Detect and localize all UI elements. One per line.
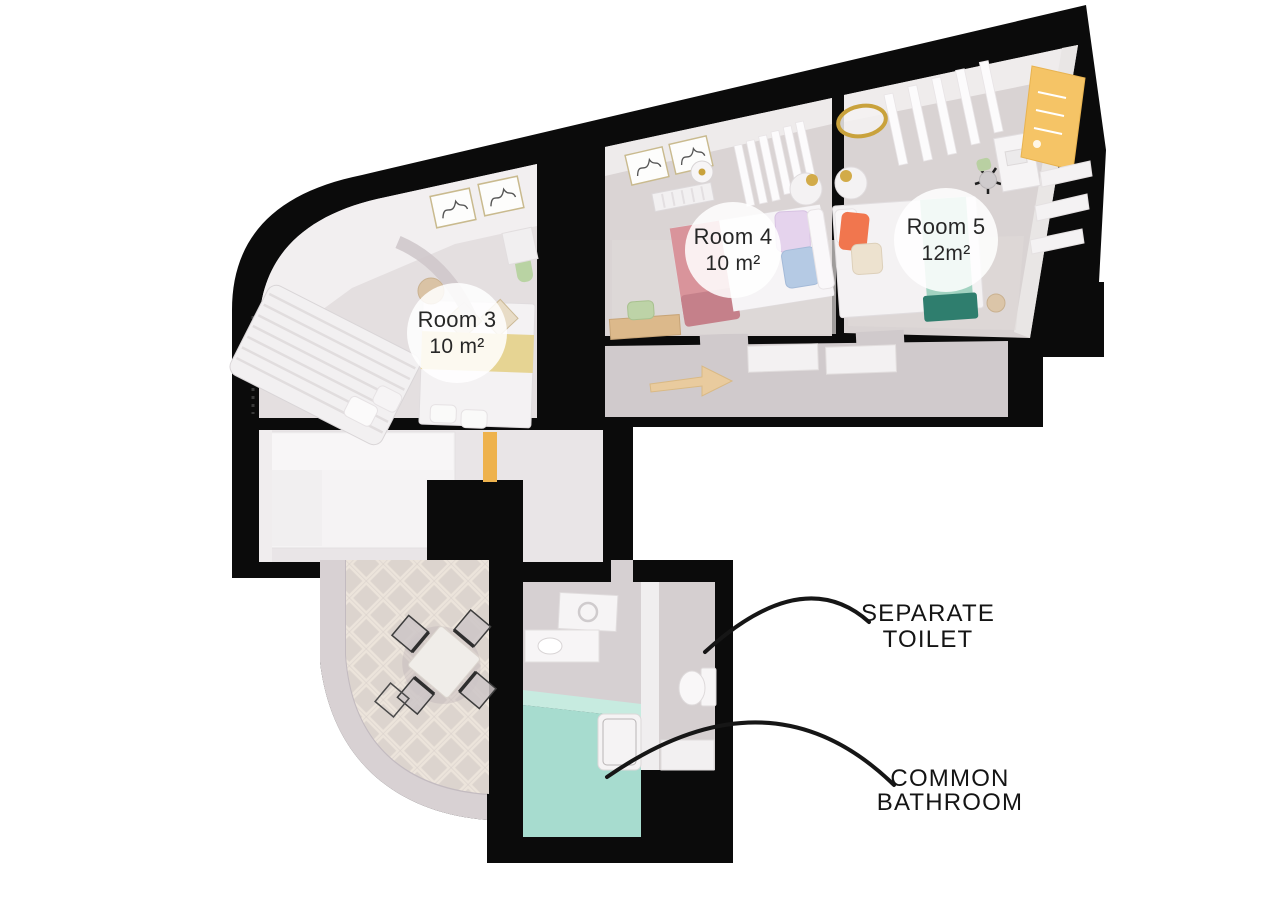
bathroom-partition-wall [641,582,659,770]
room-5-name: Room 5 [907,214,986,239]
common-bathroom-annotation: COMMON BATHROOM [877,765,1024,816]
bathroom-doorway [611,560,633,584]
corridor-door-panel-2 [826,345,897,374]
separate-toilet-line1: SEPARATE [861,600,995,627]
living-wall-face [259,430,272,562]
room-5-gold-lamp [840,170,852,182]
room-4-area: 10 m² [705,252,760,275]
room-3-area: 10 m² [429,335,484,358]
shower-tray [661,740,714,770]
kitchen-counter [262,434,453,470]
toilet [679,668,716,706]
room-4-pendant-lamp-center [699,169,706,176]
floor-plan-page: Room 3 10 m² Room 4 10 m² Room 5 12m² SE… [0,0,1280,921]
common-bathroom-line2: BATHROOM [877,789,1024,816]
floor-plan-drawing: Room 3 10 m² Room 4 10 m² Room 5 12m² SE… [0,0,1280,921]
room-3-shelf [502,227,538,265]
room-5-area: 12m² [921,242,970,265]
room-5-floor-pouf [987,294,1005,312]
room-5-label: Room 5 12m² [894,188,998,292]
corridor-door-panel-1 [748,344,819,372]
bathroom-sink [538,638,562,654]
room-4-label: Room 4 10 m² [685,202,781,298]
yellow-door-leaf [483,432,497,482]
closet-block [427,480,523,568]
room-4-name: Room 4 [694,224,773,249]
separate-toilet-line2: TOILET [883,626,974,653]
room-4-door-opening [700,333,749,348]
common-bathroom-line1: COMMON [890,765,1009,792]
room-5-wardrobe [1021,66,1085,170]
washing-machine [558,593,618,632]
room-4-gold-lamp [806,174,818,186]
room-3-name: Room 3 [418,307,497,332]
separate-toilet-annotation: SEPARATE TOILET [861,600,995,653]
room-3-label: Room 3 10 m² [407,283,507,383]
room-5-wardrobe-knob [1033,140,1041,148]
room-5-bedside-table [835,167,867,199]
room-5-door-opening [856,330,905,345]
